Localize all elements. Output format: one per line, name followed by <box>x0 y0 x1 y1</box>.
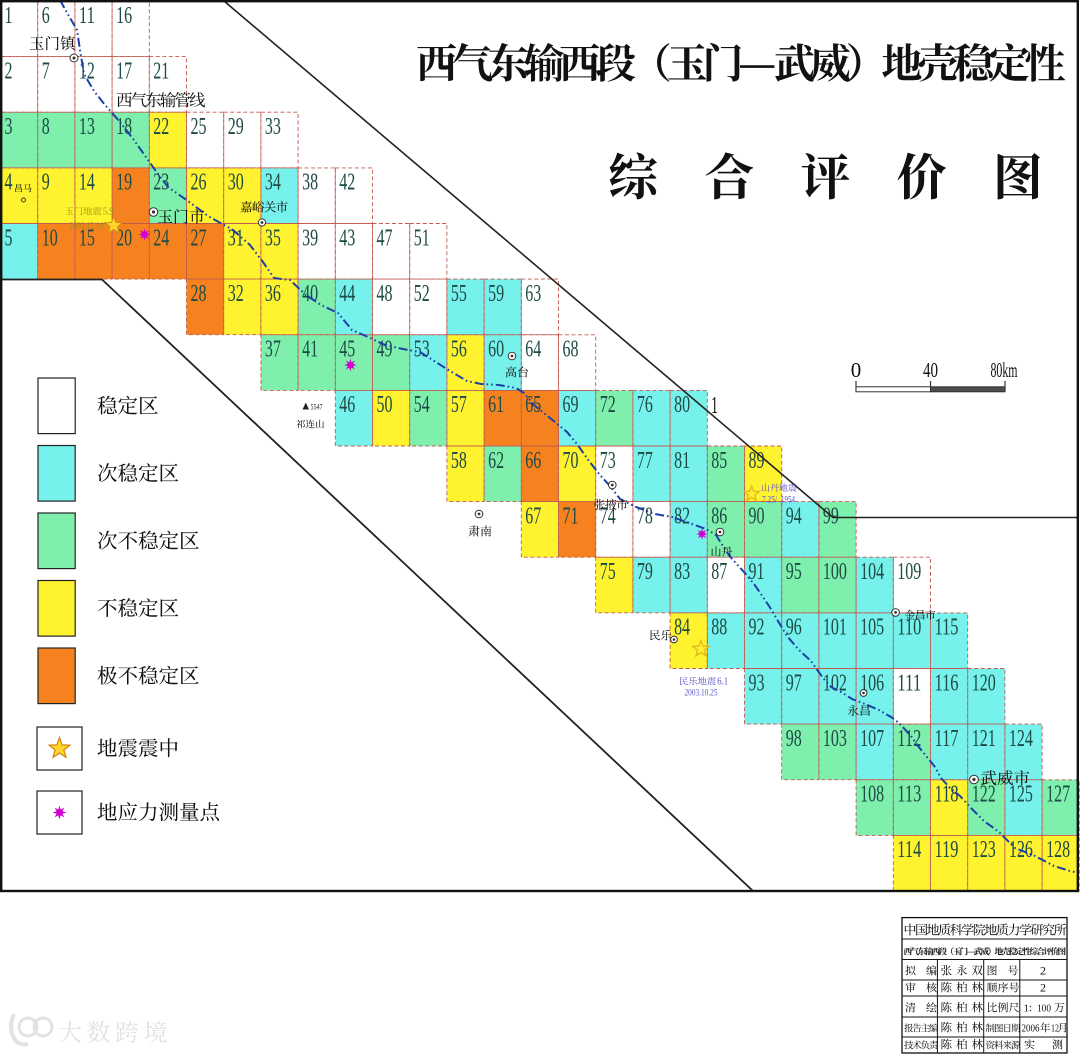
svg-text:121: 121 <box>972 726 996 752</box>
svg-text:27: 27 <box>191 225 207 251</box>
svg-text:113: 113 <box>897 782 921 808</box>
svg-text:122: 122 <box>972 782 996 808</box>
svg-text:123: 123 <box>972 837 996 863</box>
svg-text:67: 67 <box>525 503 541 529</box>
svg-text:58: 58 <box>451 448 467 474</box>
svg-text:40: 40 <box>923 358 938 382</box>
svg-text:47: 47 <box>377 225 393 251</box>
svg-text:105: 105 <box>860 615 884 641</box>
svg-text:108: 108 <box>860 782 884 808</box>
svg-text:59: 59 <box>488 281 504 307</box>
svg-text:98: 98 <box>786 726 802 752</box>
svg-text:18: 18 <box>116 114 132 140</box>
svg-text:28: 28 <box>191 281 207 307</box>
svg-text:19: 19 <box>116 170 132 196</box>
svg-text:29: 29 <box>228 114 244 140</box>
svg-text:17: 17 <box>116 58 132 84</box>
svg-text:97: 97 <box>786 670 802 696</box>
svg-text:48: 48 <box>377 281 393 307</box>
svg-text:43: 43 <box>339 225 355 251</box>
svg-text:87: 87 <box>711 559 727 585</box>
svg-text:63: 63 <box>525 281 541 307</box>
svg-text:116: 116 <box>935 670 959 696</box>
svg-text:2: 2 <box>1040 981 1046 995</box>
svg-text:82: 82 <box>674 503 690 529</box>
svg-text:1954: 1954 <box>781 496 795 506</box>
svg-text:119: 119 <box>935 837 959 863</box>
svg-text:72: 72 <box>600 392 616 418</box>
svg-text:2002.12.14: 2002.12.14 <box>70 222 104 232</box>
svg-text:103: 103 <box>823 726 847 752</box>
svg-text:51: 51 <box>414 225 430 251</box>
svg-text:77: 77 <box>637 448 653 474</box>
svg-text:42: 42 <box>339 170 355 196</box>
svg-text:32: 32 <box>228 281 244 307</box>
svg-text:9: 9 <box>42 170 50 196</box>
svg-text:8: 8 <box>42 114 50 140</box>
svg-text:4: 4 <box>5 170 13 196</box>
svg-text:36: 36 <box>265 281 281 307</box>
svg-text:40: 40 <box>302 281 318 307</box>
svg-text:2006: 2006 <box>1022 1023 1040 1035</box>
svg-text:61: 61 <box>488 392 504 418</box>
svg-text:2003.10.25: 2003.10.25 <box>685 689 718 699</box>
svg-text:45: 45 <box>339 337 355 363</box>
svg-text:86: 86 <box>711 503 727 529</box>
svg-text:118: 118 <box>935 782 959 808</box>
svg-text:11: 11 <box>79 3 95 29</box>
svg-text:26: 26 <box>191 170 207 196</box>
svg-text:1: 1 <box>711 393 718 419</box>
svg-text:7.25/: 7.25/ <box>762 496 777 506</box>
svg-text:88: 88 <box>711 615 727 641</box>
svg-text:92: 92 <box>749 615 765 641</box>
svg-text:10: 10 <box>42 225 58 251</box>
svg-text:24: 24 <box>153 225 169 251</box>
svg-text:124: 124 <box>1009 726 1033 752</box>
svg-text:54: 54 <box>414 392 430 418</box>
svg-text:104: 104 <box>860 559 884 585</box>
svg-text:1: 1 <box>1024 1003 1030 1015</box>
svg-text:109: 109 <box>897 559 921 585</box>
svg-text:117: 117 <box>935 726 959 752</box>
svg-text:25: 25 <box>191 114 207 140</box>
svg-text:7: 7 <box>42 58 50 84</box>
svg-text:44: 44 <box>339 281 355 307</box>
svg-text:52: 52 <box>414 281 430 307</box>
svg-text:60: 60 <box>488 337 504 363</box>
svg-text:96: 96 <box>786 615 802 641</box>
svg-text:114: 114 <box>897 837 921 863</box>
svg-text:13: 13 <box>79 114 95 140</box>
svg-text:53: 53 <box>414 337 430 363</box>
svg-text:73: 73 <box>600 448 616 474</box>
svg-text:75: 75 <box>600 559 616 585</box>
svg-text:70: 70 <box>563 448 579 474</box>
svg-text:23: 23 <box>153 170 169 196</box>
svg-text:66: 66 <box>525 448 541 474</box>
svg-text:79: 79 <box>637 559 653 585</box>
svg-text:2: 2 <box>5 58 13 84</box>
svg-text:50: 50 <box>377 392 393 418</box>
svg-text:115: 115 <box>935 615 959 641</box>
svg-text:100: 100 <box>1037 1003 1051 1015</box>
svg-text:41: 41 <box>302 337 318 363</box>
svg-text:16: 16 <box>116 3 132 29</box>
svg-text:107: 107 <box>860 726 884 752</box>
svg-text:38: 38 <box>302 170 318 196</box>
svg-text:94: 94 <box>786 503 802 529</box>
svg-text:6.1: 6.1 <box>717 677 728 688</box>
svg-text:80: 80 <box>674 392 690 418</box>
svg-text:14: 14 <box>79 170 95 196</box>
svg-text:49: 49 <box>377 337 393 363</box>
svg-text:64: 64 <box>525 337 541 363</box>
svg-text:37: 37 <box>265 337 281 363</box>
svg-text:21: 21 <box>153 58 169 84</box>
svg-text:125: 125 <box>1009 782 1033 808</box>
svg-text:90: 90 <box>749 503 765 529</box>
svg-text:111: 111 <box>897 670 921 696</box>
svg-text:34: 34 <box>265 170 281 196</box>
svg-text:85: 85 <box>711 448 727 474</box>
svg-text:100: 100 <box>823 559 847 585</box>
svg-text:120: 120 <box>972 670 996 696</box>
svg-text:0: 0 <box>851 358 862 382</box>
svg-text:39: 39 <box>302 225 318 251</box>
svg-text:93: 93 <box>749 670 765 696</box>
svg-text:5: 5 <box>5 225 13 251</box>
svg-text:83: 83 <box>674 559 690 585</box>
svg-text:35: 35 <box>265 225 281 251</box>
svg-text:30: 30 <box>228 170 244 196</box>
svg-text:22: 22 <box>153 114 169 140</box>
svg-text:5.9: 5.9 <box>103 207 114 218</box>
svg-text:62: 62 <box>488 448 504 474</box>
svg-text:127: 127 <box>1046 782 1070 808</box>
svg-text:68: 68 <box>563 337 579 363</box>
svg-text:6: 6 <box>42 3 50 29</box>
svg-text:69: 69 <box>563 392 579 418</box>
svg-text:5547: 5547 <box>311 402 323 412</box>
svg-text:81: 81 <box>674 448 690 474</box>
svg-text:101: 101 <box>823 615 847 641</box>
svg-text:95: 95 <box>786 559 802 585</box>
svg-text:80km: 80km <box>991 358 1018 382</box>
svg-text:1: 1 <box>5 3 13 29</box>
svg-text:71: 71 <box>563 503 579 529</box>
svg-text:76: 76 <box>637 392 653 418</box>
svg-text:33: 33 <box>265 114 281 140</box>
svg-text:128: 128 <box>1046 837 1070 863</box>
svg-text:12: 12 <box>1051 1023 1059 1035</box>
svg-text:2: 2 <box>1040 964 1046 978</box>
svg-text:112: 112 <box>897 726 921 752</box>
svg-text:57: 57 <box>451 392 467 418</box>
svg-text:55: 55 <box>451 281 467 307</box>
svg-text:46: 46 <box>339 392 355 418</box>
svg-text:3: 3 <box>5 114 13 140</box>
svg-text:56: 56 <box>451 337 467 363</box>
svg-text:110: 110 <box>897 615 921 641</box>
